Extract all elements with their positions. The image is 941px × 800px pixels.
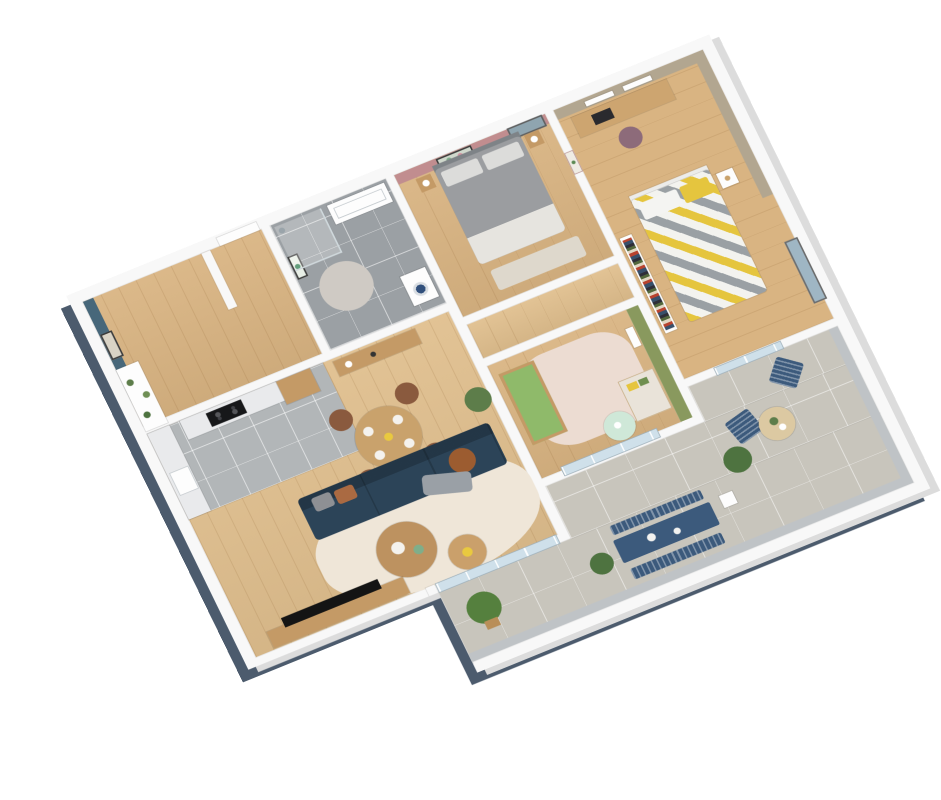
- apartment-scene: [66, 34, 930, 750]
- floor-plan-render: [0, 0, 941, 800]
- floorplate-walls: [66, 34, 930, 750]
- page: { "scene": { "type": "3d-floor-plan-rend…: [0, 0, 941, 800]
